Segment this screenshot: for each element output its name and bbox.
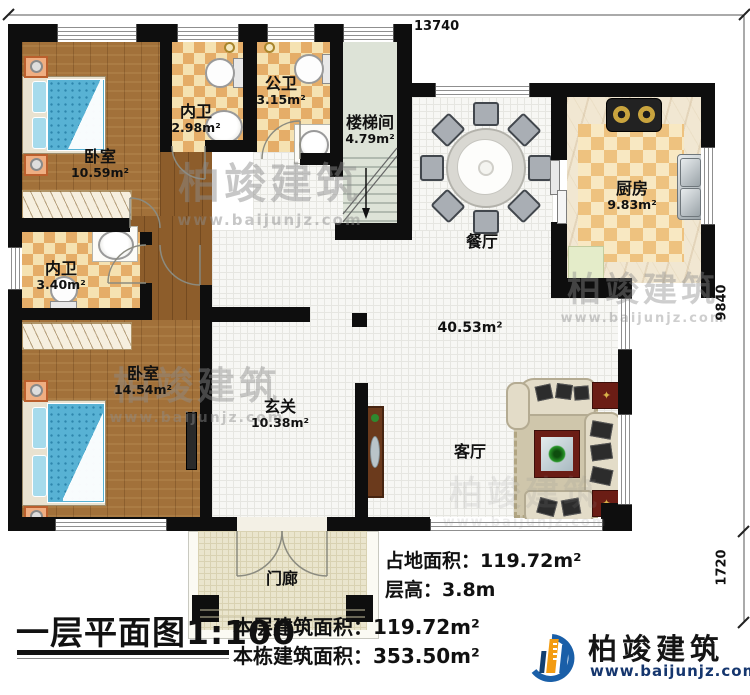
wall [352, 313, 367, 327]
plan-title-rule [17, 650, 229, 659]
wall-lamp-1 [224, 42, 235, 53]
window [435, 83, 530, 97]
dimension-right-lower: 1720 [715, 546, 730, 590]
room-label-ensuite2: 内卫 3.40m² [13, 260, 109, 292]
nightstand-1a [24, 56, 48, 78]
wall [300, 153, 330, 165]
tv-panel [186, 412, 197, 470]
room-label-living: 客厅 [422, 443, 518, 461]
dining-chair [420, 155, 444, 181]
room-label-dining: 餐厅 [434, 233, 530, 251]
window [701, 147, 715, 225]
window [55, 519, 167, 531]
common-area-value: 40.53m² [422, 321, 518, 337]
nightstand-1b [24, 154, 48, 176]
dining-table [446, 128, 526, 208]
wall [200, 285, 212, 517]
foyer-console [366, 406, 384, 498]
room-label-public-bath: 公卫 3.15m² [233, 75, 329, 107]
wall [355, 383, 368, 517]
window [618, 414, 632, 505]
wall [551, 222, 567, 283]
room-label-kitchen: 厨房 9.83m² [584, 180, 680, 212]
wardrobe-2 [22, 322, 132, 350]
sofa-chaise [506, 382, 530, 430]
wall [327, 517, 430, 531]
kitchen-mat [568, 246, 604, 280]
kitchen-sink [677, 154, 704, 220]
bed-2 [22, 400, 106, 506]
wall-lamp-2 [264, 42, 275, 53]
room-label-porch: 门廊 [234, 570, 330, 588]
kitchen-sliding-door [549, 160, 567, 222]
room-label-bedroom2: 卧室 14.54m² [95, 365, 191, 397]
coffee-table [534, 430, 580, 478]
wall [140, 232, 152, 245]
window [618, 298, 632, 350]
nightstand-2a [24, 380, 48, 402]
wall [551, 83, 567, 160]
dining-chair [473, 210, 499, 234]
side-table-top: ✦ [592, 382, 621, 409]
wall [551, 278, 632, 298]
wall [330, 42, 343, 177]
dimension-right-upper: 9840 [715, 281, 730, 325]
wall [160, 42, 172, 152]
dimension-top: 13740 [414, 19, 459, 34]
dining-chair [473, 102, 499, 126]
wall [601, 503, 632, 531]
floor-plan-page: ✦ ✦ [0, 0, 750, 695]
window [343, 24, 394, 42]
bed-1 [22, 76, 106, 154]
room-label-foyer: 玄关 10.38m² [232, 398, 328, 430]
stove [606, 98, 662, 132]
company-logo-icon [524, 627, 584, 687]
wall [212, 307, 310, 322]
window [430, 519, 603, 531]
wall [22, 308, 152, 320]
storey-height-text: 层高：3.8m [385, 575, 495, 602]
building-area-text: 本栋建筑面积：353.50m² [233, 640, 480, 669]
sofa-right [584, 412, 621, 500]
window [177, 24, 239, 42]
company-logo: 柏竣建筑 www.baijunjz.com [524, 626, 744, 690]
window [57, 24, 137, 42]
room-label-stairwell: 楼梯间 4.79m² [322, 114, 418, 146]
floor-area-text: 本层建筑面积：119.72m² [233, 611, 480, 640]
company-website: www.baijunjz.com [590, 662, 750, 680]
site-area-text: 占地面积：119.72m² [385, 546, 581, 573]
window [267, 24, 315, 42]
sink-ensuite2 [98, 230, 134, 260]
wardrobe-1 [22, 190, 132, 220]
wall [205, 140, 243, 152]
wall [335, 223, 412, 240]
wall [8, 218, 130, 232]
room-label-ensuite1: 内卫 2.98m² [148, 103, 244, 135]
entry-threshold [237, 517, 327, 531]
room-label-bedroom1: 卧室 10.59m² [52, 148, 148, 180]
